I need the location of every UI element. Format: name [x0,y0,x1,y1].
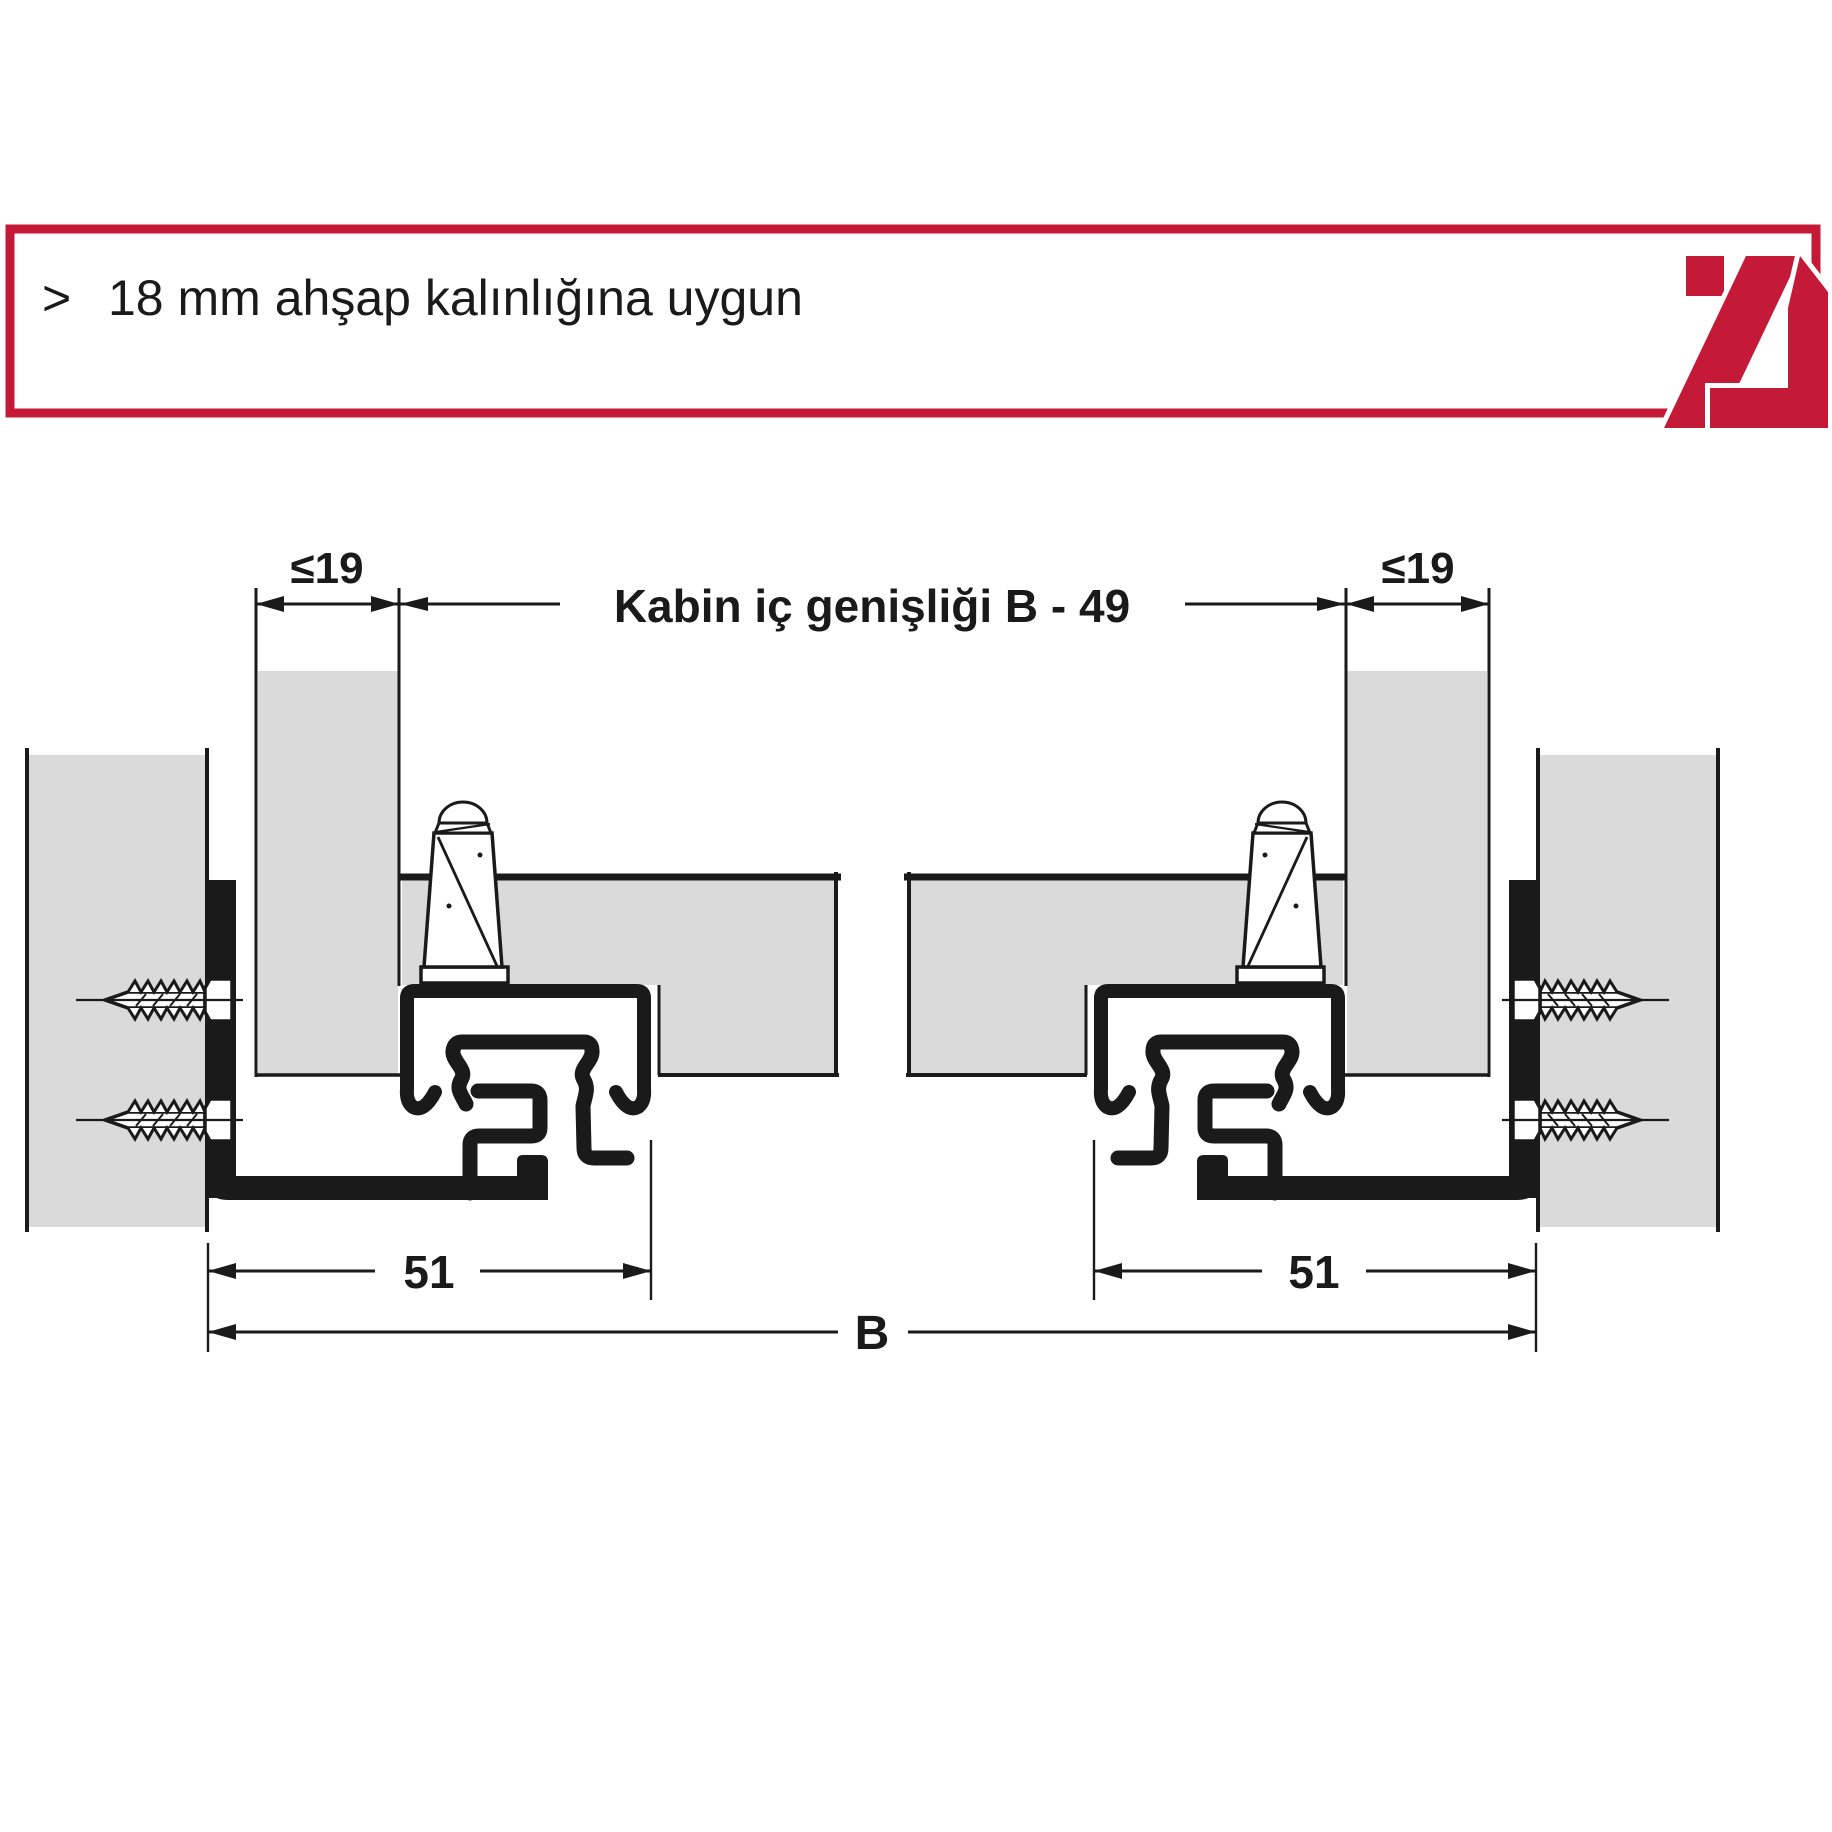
dim-label-slide-left: 51 [403,1246,454,1298]
slide-assembly-left [27,588,841,1232]
dim-slide-offset-left: 51 [208,1246,651,1298]
dim-panel-thickness-right: ≤19 [1346,544,1489,612]
header: > 18 mm ahşap kalınlığına uygun [10,229,1828,428]
dim-slide-offset-right: 51 [1094,1246,1536,1298]
slide-assembly-right [904,588,1718,1232]
dim-cabinet-width: B [208,1307,1536,1360]
dim-label-slide-right: 51 [1288,1246,1339,1298]
hafele-logo-icon [1664,256,1828,428]
page: > 18 mm ahşap kalınlığına uygun ≤19 Kabi… [0,0,1832,1832]
dim-panel-thickness-left: ≤19 [256,544,399,612]
dim-cabinet-inner-width: Kabin iç genişliği B - 49 [400,580,1345,632]
logo-dot-icon [1686,256,1724,296]
dim-label-cabinet-width: B [855,1307,890,1360]
diagram-canvas: > 18 mm ahşap kalınlığına uygun ≤19 Kabi… [0,0,1832,1832]
dim-label-panel-left: ≤19 [290,544,363,593]
header-note: 18 mm ahşap kalınlığına uygun [108,270,803,326]
dim-label-inner-width: Kabin iç genişliği B - 49 [614,580,1130,632]
dim-label-panel-right: ≤19 [1381,544,1454,593]
header-bullet: > [42,270,71,326]
